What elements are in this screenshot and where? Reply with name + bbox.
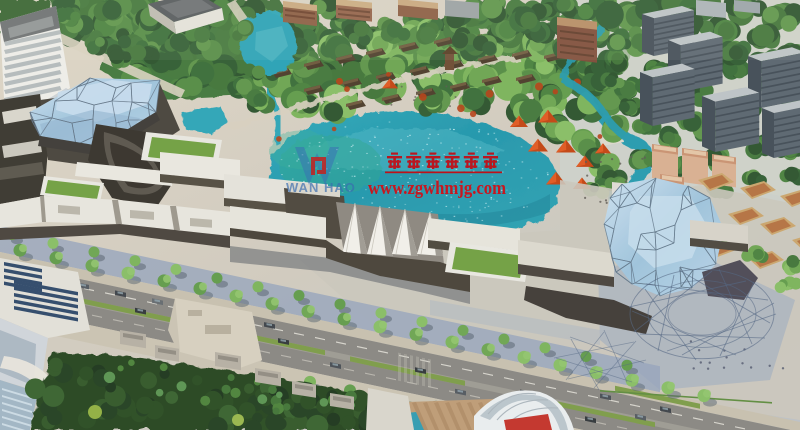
svg-text:WAN HAO: WAN HAO (286, 180, 356, 195)
svg-text:www.zgwhmjg.com: www.zgwhmjg.com (368, 178, 506, 199)
